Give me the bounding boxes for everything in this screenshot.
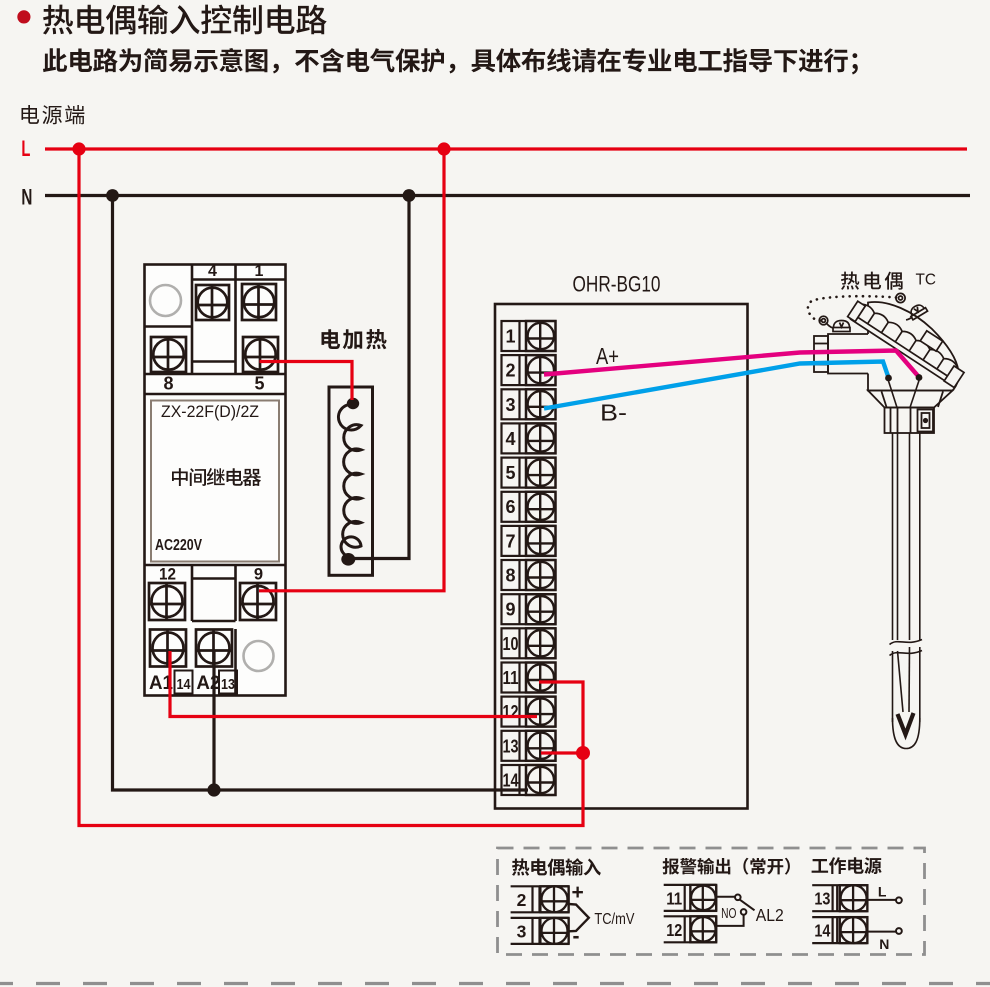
svg-text:1: 1 xyxy=(505,327,515,347)
svg-text:TC/mV: TC/mV xyxy=(594,911,635,928)
svg-text:N: N xyxy=(879,936,889,952)
svg-text:4: 4 xyxy=(208,263,217,280)
svg-text:OHR-BG10: OHR-BG10 xyxy=(573,272,661,297)
svg-text:2: 2 xyxy=(517,890,527,910)
svg-text:7: 7 xyxy=(505,531,515,551)
svg-text:4: 4 xyxy=(505,429,515,449)
svg-text:8: 8 xyxy=(163,374,173,394)
svg-text:11: 11 xyxy=(503,668,519,688)
svg-text:L: L xyxy=(21,136,30,161)
svg-text:AC220V: AC220V xyxy=(155,537,202,554)
svg-text:5: 5 xyxy=(254,374,264,394)
svg-text:+: + xyxy=(572,881,584,904)
svg-text:A+: A+ xyxy=(596,343,619,369)
svg-text:3: 3 xyxy=(517,921,527,941)
svg-text:2: 2 xyxy=(505,361,515,381)
svg-text:11: 11 xyxy=(666,888,682,908)
svg-text:6: 6 xyxy=(505,497,515,517)
svg-text:14: 14 xyxy=(177,676,192,693)
svg-text:ZX-22F(D)/2Z: ZX-22F(D)/2Z xyxy=(161,402,259,421)
svg-text:AL2: AL2 xyxy=(756,905,784,925)
svg-text:12: 12 xyxy=(159,566,176,584)
svg-text:NO: NO xyxy=(721,906,736,922)
svg-text:14: 14 xyxy=(814,921,830,941)
svg-text:N: N xyxy=(21,185,32,210)
svg-text:10: 10 xyxy=(503,634,519,654)
svg-text:8: 8 xyxy=(505,566,515,586)
svg-text:9: 9 xyxy=(505,600,515,620)
svg-text:A2: A2 xyxy=(196,673,220,694)
svg-text:12: 12 xyxy=(503,702,519,722)
svg-text:12: 12 xyxy=(666,920,682,940)
svg-text:L: L xyxy=(878,884,887,900)
svg-text:5: 5 xyxy=(505,463,515,483)
svg-text:B-: B- xyxy=(600,400,627,426)
svg-text:14: 14 xyxy=(503,771,519,791)
svg-text:1: 1 xyxy=(255,263,264,280)
svg-text:3: 3 xyxy=(505,395,515,415)
svg-text:13: 13 xyxy=(814,889,830,909)
svg-text:13: 13 xyxy=(503,736,519,756)
svg-text:TC: TC xyxy=(916,272,937,289)
svg-text:13: 13 xyxy=(221,676,235,693)
svg-text:9: 9 xyxy=(254,566,263,584)
